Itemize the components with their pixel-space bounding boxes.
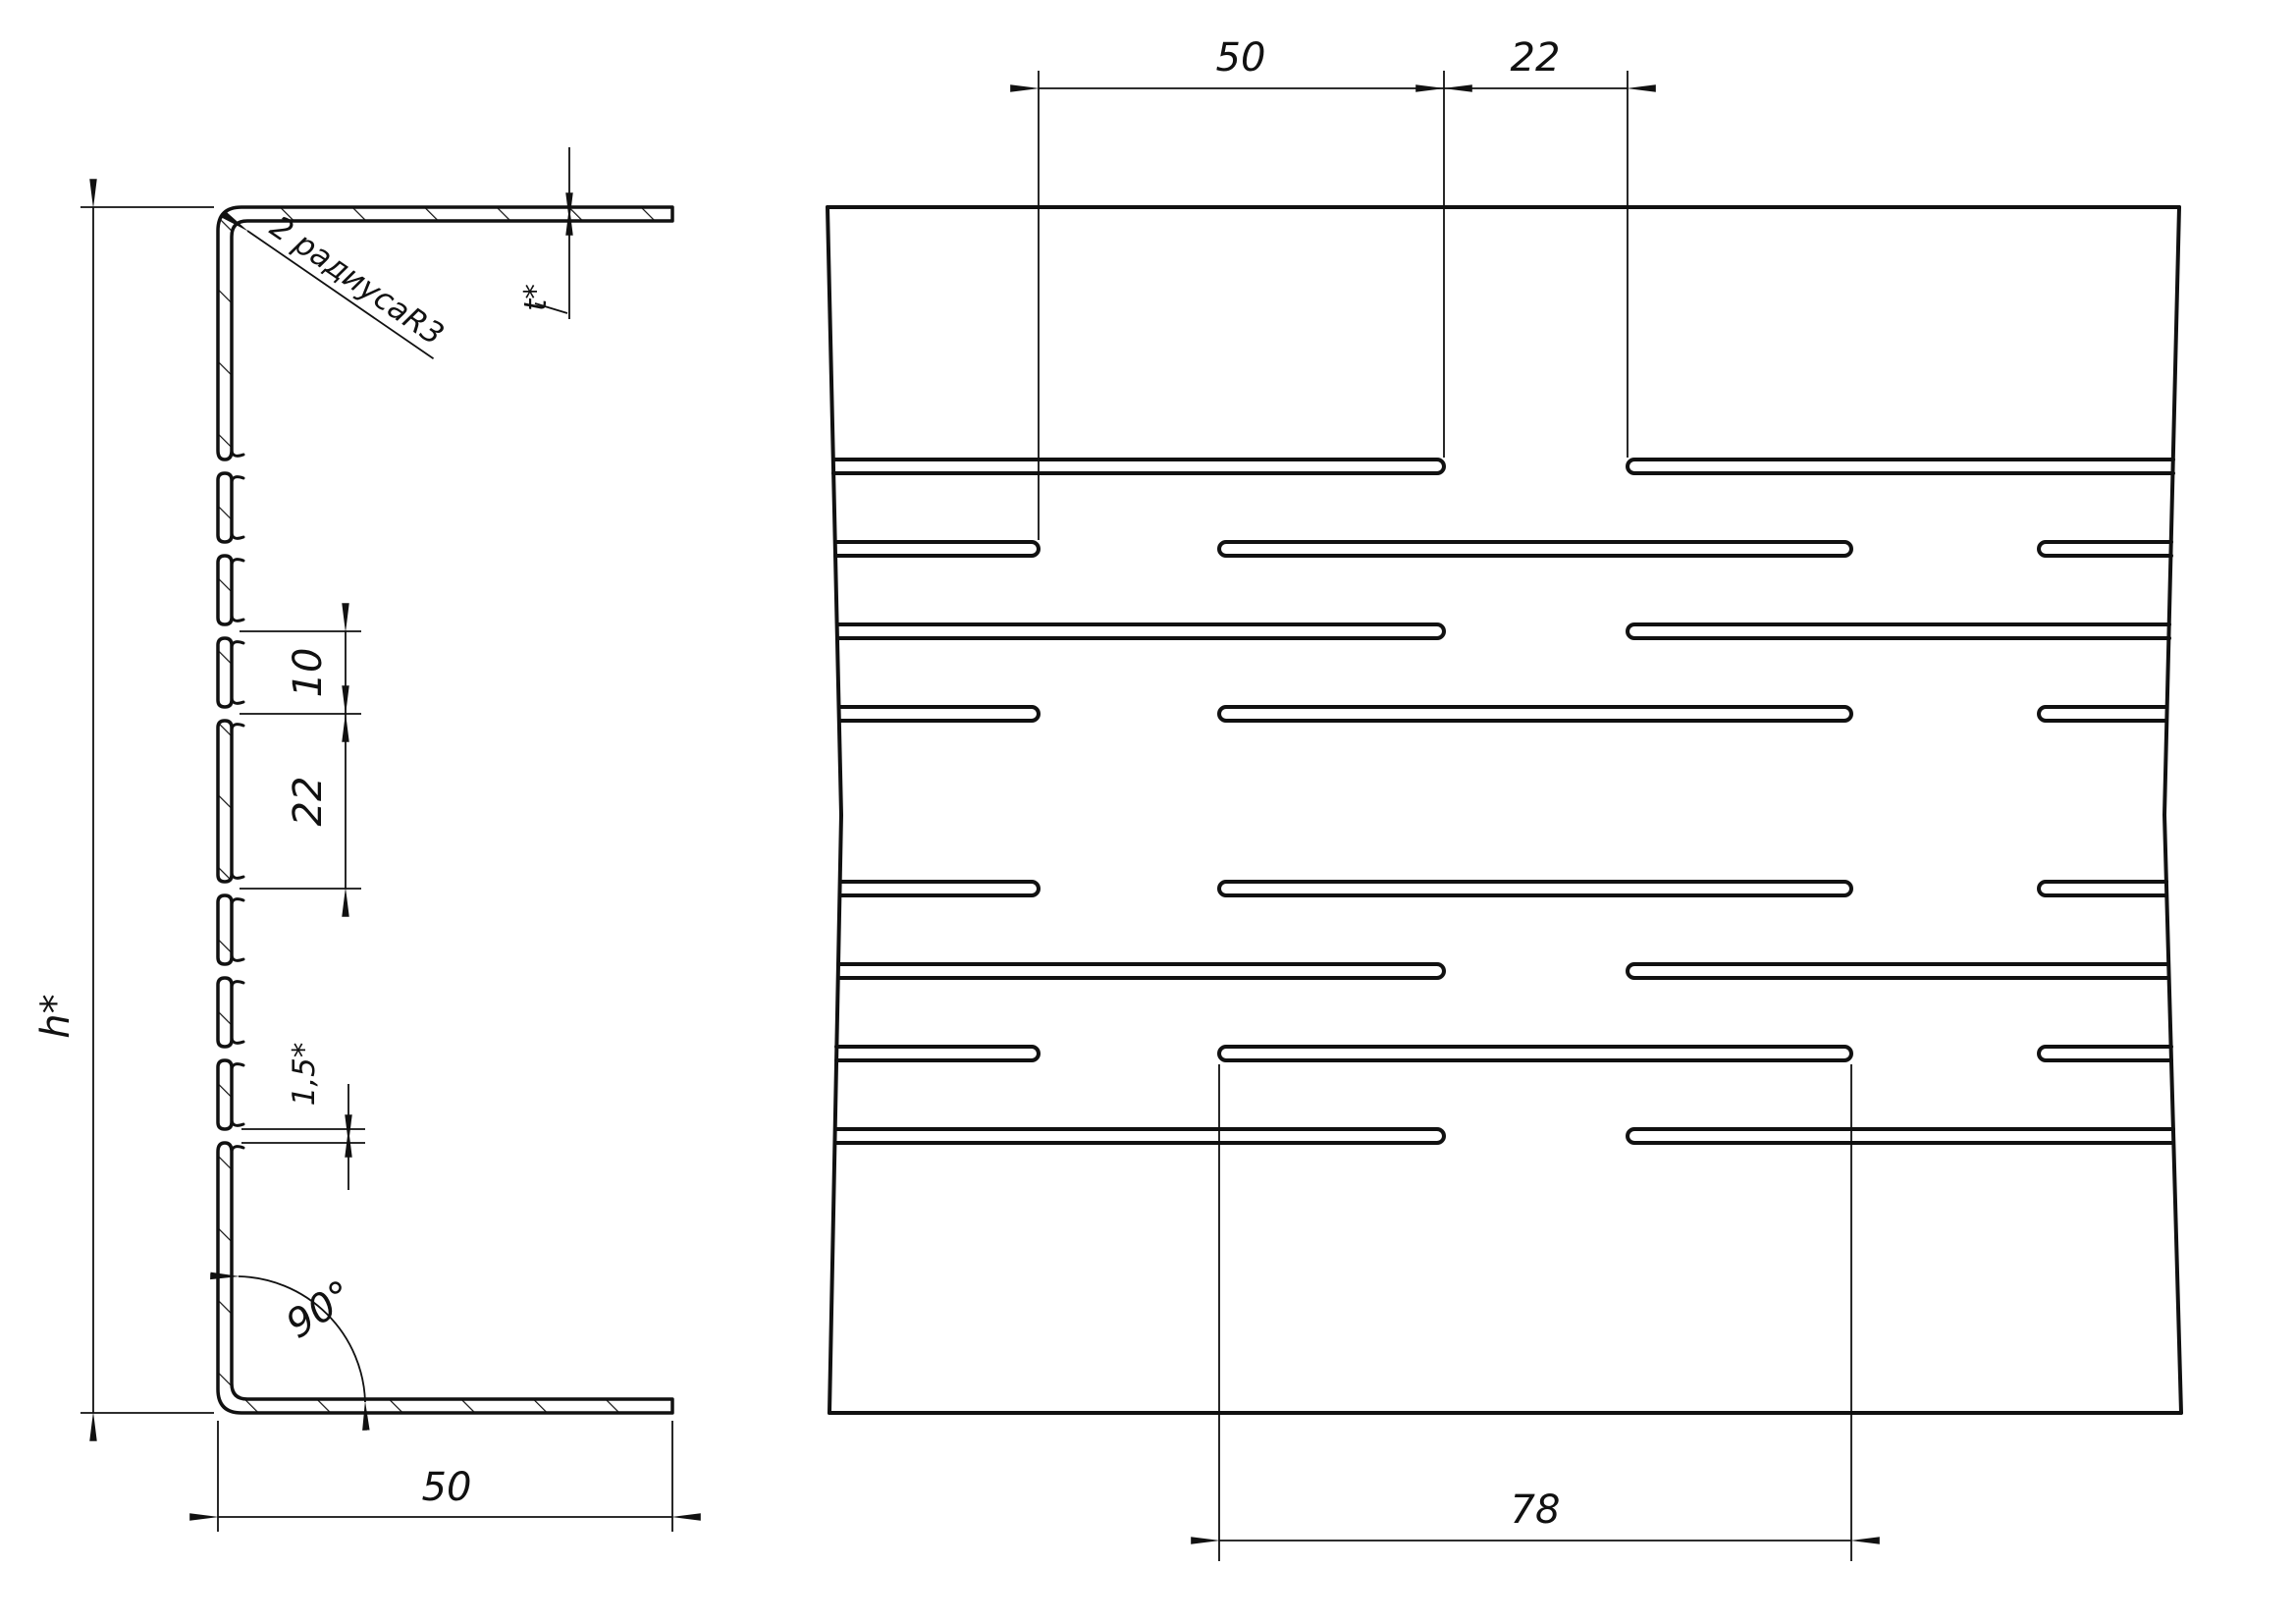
dim-bridge-small-label: 10 [286, 648, 331, 698]
section-web-piece-tall [218, 721, 232, 882]
dim-height-label: h* [33, 994, 79, 1038]
section-web-piece [218, 473, 232, 542]
dim-slot-bridge-label: 22 [1511, 35, 1561, 81]
dim-slot-stagger-label: 50 [1216, 35, 1266, 81]
dim-bridge-large-label: 22 [286, 777, 331, 827]
dim-slot-gap-label: 1,5* [287, 1043, 322, 1107]
sheet-background [0, 0, 2296, 1623]
section-web-piece [218, 895, 232, 964]
dim-slot-length-label: 78 [1511, 1488, 1561, 1533]
section-web-piece [218, 1060, 232, 1129]
section-web-piece [218, 556, 232, 624]
technical-drawing-canvas: h* t* 2 радиуса R3 10 22 [0, 0, 2296, 1623]
dim-thickness-label: t* [518, 284, 554, 311]
section-web-piece [218, 978, 232, 1047]
section-web-piece [218, 638, 232, 707]
dim-flange-width-label: 50 [422, 1465, 472, 1510]
